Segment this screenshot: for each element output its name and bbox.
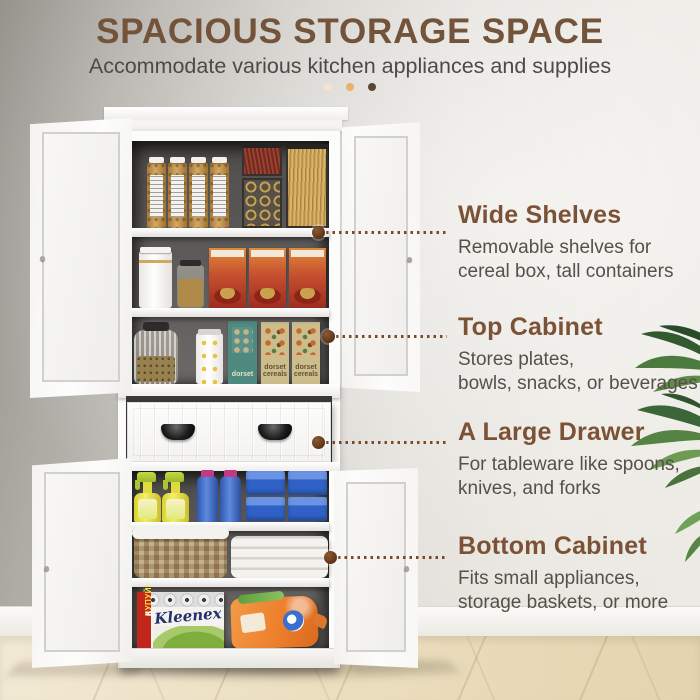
- cabinet-crown-molding: [104, 107, 348, 120]
- khaki-cereal-box: dorset cereals: [292, 322, 320, 384]
- kleenex-green-band: [153, 626, 224, 648]
- cabinet-crown-molding-lower: [110, 120, 342, 131]
- infographic-canvas: SPACIOUS STORAGE SPACE Accommodate vario…: [0, 0, 700, 700]
- drawer-cup-handle: [161, 424, 195, 440]
- snack-jar: [210, 162, 229, 228]
- blue-bottle: [220, 475, 241, 522]
- door-knob: [40, 256, 45, 261]
- door-panel: [42, 132, 120, 382]
- dorset-label: dorset: [228, 371, 257, 378]
- cereal-box-red: [249, 248, 286, 308]
- drawer-cup-handle: [258, 424, 292, 440]
- accent-dots: [0, 83, 700, 91]
- callout-title: Top Cabinet: [458, 313, 698, 342]
- door-panel: [354, 136, 408, 376]
- spaghetti-container: [286, 144, 328, 228]
- callout-title: Bottom Cabinet: [458, 532, 698, 561]
- cabinet-plinth: [120, 648, 338, 668]
- dorset-label: dorset: [261, 364, 289, 371]
- leader-line-wide-shelves: [326, 231, 447, 234]
- bottom-right-door-open: [334, 468, 418, 668]
- wicker-basket: [134, 533, 227, 578]
- kleenex-paper-towel-pack: КУПУЙ! 8 6 Kleenex: [137, 592, 224, 648]
- page-title: SPACIOUS STORAGE SPACE: [0, 12, 700, 52]
- folded-linens: [231, 536, 328, 578]
- leader-line-bottom-cabinet: [338, 556, 447, 559]
- callout-title: A Large Drawer: [458, 418, 698, 447]
- top-right-door-open: [342, 122, 420, 392]
- white-canister: [139, 251, 172, 308]
- spray-bottle: [162, 469, 189, 523]
- door-knob: [407, 257, 412, 262]
- shelf-divider: [131, 228, 329, 237]
- ribbed-glass-jar-seeds: [134, 330, 178, 384]
- leader-line-large-drawer: [326, 441, 447, 444]
- callout-line: Removable shelves for: [458, 236, 698, 260]
- kleenex-logo: Kleenex: [152, 606, 223, 627]
- callout-wide-shelves: Wide Shelves Removable shelves for cerea…: [458, 201, 698, 284]
- callout-large-drawer: A Large Drawer For tableware like spoons…: [458, 418, 698, 501]
- callout-bottom-cabinet: Bottom Cabinet Fits small appliances, st…: [458, 532, 698, 615]
- cereals-label: cereals: [292, 371, 320, 378]
- door-knob: [404, 566, 409, 571]
- page-subtitle: Accommodate various kitchen appliances a…: [0, 54, 700, 79]
- door-panel: [346, 482, 406, 652]
- callout-line: Fits small appliances,: [458, 567, 698, 591]
- door-knob: [44, 566, 49, 571]
- top-left-door-open: [30, 118, 132, 398]
- callout-line: storage baskets, or more: [458, 591, 698, 615]
- blue-bottle: [197, 475, 218, 522]
- shelf-divider: [131, 578, 329, 587]
- blue-box-stack: [246, 471, 285, 522]
- cereal-box-red: [209, 248, 246, 308]
- snack-jar: [189, 162, 208, 228]
- khaki-cereal-box: dorset cereals: [261, 322, 289, 384]
- dorset-label: dorset: [292, 364, 320, 371]
- accent-dot-cream-icon: [324, 83, 332, 91]
- callout-line: cereal box, tall containers: [458, 260, 698, 284]
- spray-bottle: [134, 469, 161, 523]
- accent-dot-brown-icon: [368, 83, 376, 91]
- glass-jar: [177, 265, 204, 308]
- clear-box-red-sticks: [242, 143, 282, 176]
- teal-cereal-box: dorset: [228, 321, 257, 384]
- callout-line: For tableware like spoons,: [458, 453, 698, 477]
- cereals-label: cereals: [261, 371, 289, 378]
- cereal-box-red: [289, 248, 326, 308]
- snack-jar: [168, 162, 187, 228]
- marker-dot-icon: [324, 551, 337, 564]
- marker-dot-icon: [312, 436, 325, 449]
- white-can: [196, 333, 223, 384]
- callout-line: Stores plates,: [458, 348, 698, 372]
- callout-top-cabinet: Top Cabinet Stores plates, bowls, snacks…: [458, 313, 698, 396]
- drawer-front: [127, 402, 331, 462]
- bottom-left-door-open: [32, 458, 132, 668]
- snack-jar: [147, 162, 166, 228]
- callout-line: knives, and forks: [458, 477, 698, 501]
- shelf-divider: [131, 308, 329, 317]
- clear-box-gold-rings: [242, 178, 282, 228]
- marker-dot-icon: [322, 330, 335, 343]
- callout-line: bowls, snacks, or beverages: [458, 372, 698, 396]
- marker-dot-icon: [312, 226, 325, 239]
- door-panel: [44, 472, 120, 652]
- blue-box-stack: [288, 471, 327, 522]
- accent-dot-orange-icon: [346, 83, 354, 91]
- leader-line-top-cabinet: [336, 335, 447, 338]
- callout-title: Wide Shelves: [458, 201, 698, 230]
